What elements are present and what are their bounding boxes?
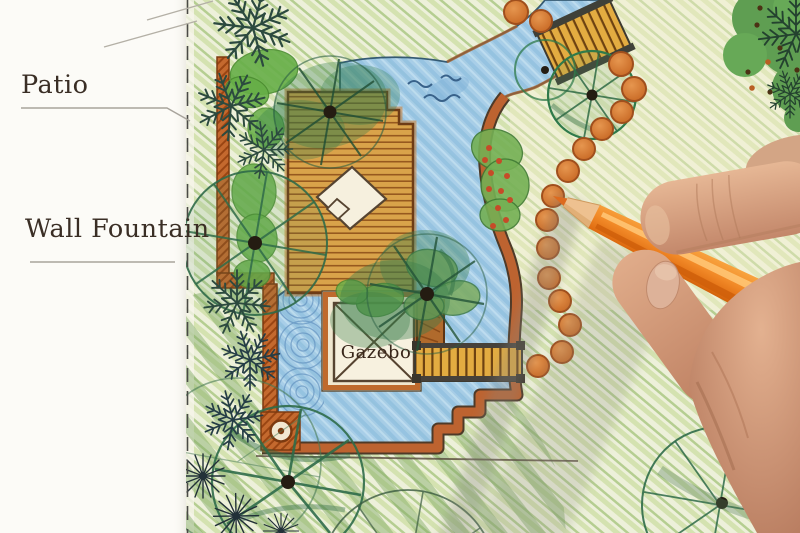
gazebo-label: Gazebo xyxy=(341,342,412,363)
plan-canvas: Patio Wall Fountain Gazebo xyxy=(0,0,800,533)
patio-label: Patio xyxy=(21,70,88,100)
garden-plan-photo: Patio Wall Fountain Gazebo xyxy=(0,0,800,533)
wall-fountain-label: Wall Fountain xyxy=(25,214,210,244)
